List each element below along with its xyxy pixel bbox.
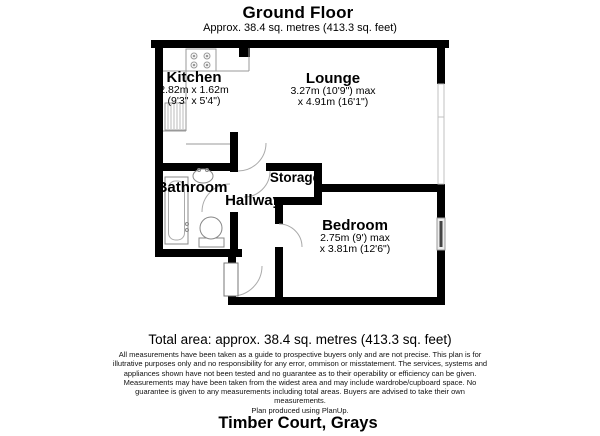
- bedroom-dims-2: x 3.81m (12'6"): [320, 244, 391, 255]
- disclaimer-line: illutrative purposes only and no respons…: [0, 359, 600, 368]
- toilet-icon: [199, 217, 224, 247]
- room-label-hallway: Hallway: [225, 193, 281, 208]
- disclaimer-line: All measurements have been taken as a gu…: [0, 350, 600, 359]
- kitchen-dims-imperial: (9'3" x 5'4"): [159, 96, 228, 107]
- room-label-lounge: Lounge 3.27m (10'9") max x 4.91m (16'1"): [290, 71, 375, 107]
- wall-bathroom-top: [155, 163, 238, 171]
- bedroom-door-arc: [279, 224, 302, 247]
- kitchen-dims-metric: 2.82m x 1.62m: [159, 85, 228, 96]
- total-area: Total area: approx. 38.4 sq. metres (413…: [148, 332, 451, 347]
- wall-lounge-bedroom: [314, 184, 445, 192]
- living-hall-door-arc: [238, 143, 266, 171]
- page: { "header": { "title": "Ground Floor", "…: [0, 0, 600, 436]
- room-label-storage: Storage: [270, 170, 320, 185]
- bedroom-name: Bedroom: [320, 218, 391, 233]
- wall-right-3: [437, 250, 445, 305]
- disclaimer: All measurements have been taken as a gu…: [0, 350, 600, 415]
- front-door-leaf: [224, 263, 238, 296]
- stove-icon: [186, 49, 216, 71]
- lounge-name: Lounge: [290, 71, 375, 86]
- room-label-bedroom: Bedroom 2.75m (9') max x 3.81m (12'6"): [320, 218, 391, 254]
- wall-hall-bedroom: [275, 247, 283, 305]
- lounge-window: [438, 84, 444, 184]
- disclaimer-line: measurements.: [0, 396, 600, 405]
- lounge-dims-1: 3.27m (10'9") max: [290, 86, 375, 97]
- bedroom-dims-1: 2.75m (9') max: [320, 233, 391, 244]
- wall-bottom: [228, 297, 445, 305]
- wall-bathroom-right: [230, 212, 238, 257]
- disclaimer-line: Measurements may have been taken from th…: [0, 378, 600, 387]
- disclaimer-line: appliances shown have not been tested an…: [0, 369, 600, 378]
- lounge-dims-2: x 4.91m (16'1"): [290, 97, 375, 108]
- storage-name: Storage: [270, 170, 320, 185]
- bathroom-name: Bathroom: [157, 180, 228, 195]
- disclaimer-line: guarantee is given to any measurements i…: [0, 387, 600, 396]
- wall-right-1: [437, 40, 445, 84]
- room-label-bathroom: Bathroom: [157, 180, 228, 195]
- footer-address: Timber Court, Grays: [218, 414, 377, 433]
- windows: [437, 84, 445, 250]
- wall-kitchen-stub: [239, 44, 250, 57]
- kitchen-name: Kitchen: [159, 70, 228, 85]
- hallway-name: Hallway: [225, 193, 281, 208]
- wall-top: [151, 40, 449, 48]
- wall-hall-kitchen: [230, 132, 238, 172]
- room-label-kitchen: Kitchen 2.82m x 1.62m (9'3" x 5'4"): [159, 70, 228, 106]
- kitchen-sink-icon: [165, 103, 186, 130]
